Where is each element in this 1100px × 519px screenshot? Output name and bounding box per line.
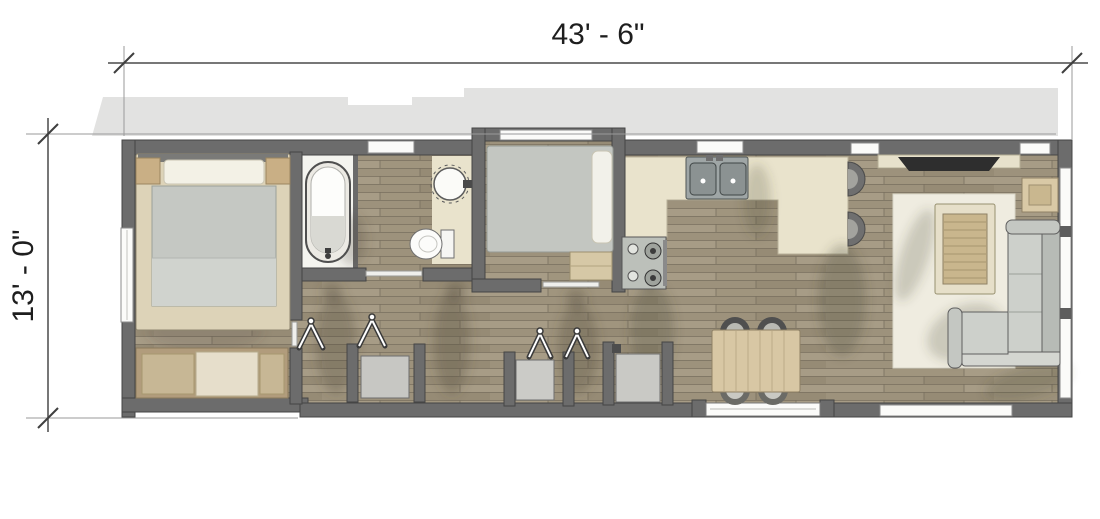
- window-kitchen: [697, 141, 743, 153]
- coffee-table-top: [943, 214, 987, 284]
- window-bathroom: [368, 141, 414, 153]
- burner-small: [628, 271, 638, 281]
- wall-closet-a-right: [414, 344, 425, 402]
- range-controls: [663, 240, 667, 286]
- pocket-door-bath: [366, 271, 422, 276]
- bunk-pillow: [592, 151, 612, 243]
- sofa-chaise-seat: [962, 312, 1008, 354]
- wall-bunkroom-left: [472, 128, 485, 292]
- sink-drain: [701, 179, 706, 184]
- window-right-wall: [1060, 168, 1071, 398]
- burner-cap: [650, 275, 656, 281]
- dresser-section: [196, 352, 258, 396]
- tub-faucet: [325, 248, 331, 253]
- sink-faucet: [716, 155, 723, 161]
- window-living-2: [1020, 143, 1050, 154]
- width-dimension-label: 43' - 6": [551, 18, 644, 51]
- shadow: [446, 280, 466, 300]
- washer: [616, 354, 660, 402]
- window-slideout: [500, 130, 592, 140]
- shadow: [566, 288, 586, 308]
- wall-bottom-bedroom: [122, 398, 308, 412]
- dresser-section: [260, 354, 284, 394]
- bathtub-water: [311, 216, 345, 253]
- height-dimension-label: 13' - 0": [7, 229, 40, 322]
- floor-plan-page: 43' - 6" 13' - 0": [0, 0, 1100, 519]
- shadow: [818, 244, 866, 356]
- wall-closet-b-left: [504, 352, 515, 406]
- dining-table: [712, 330, 800, 392]
- wall-bath-bottom-right: [423, 268, 472, 281]
- dining-area: [712, 317, 800, 405]
- shadow: [434, 290, 470, 394]
- window-bottom: [880, 405, 1012, 416]
- toilet-tank: [441, 230, 454, 258]
- pillows: [164, 160, 264, 184]
- wall-bedroom-upper: [290, 152, 302, 320]
- washer-hinge: [612, 344, 621, 353]
- master-bedroom: [136, 154, 290, 398]
- end-table-inset: [1029, 185, 1051, 205]
- entry-door-jamb-left: [692, 400, 706, 417]
- sink-faucet: [463, 180, 472, 188]
- pocket-door-bunkroom: [543, 282, 599, 287]
- tv: [898, 157, 1000, 171]
- wall-closet-c-right: [662, 342, 673, 405]
- window-living-1: [851, 143, 879, 154]
- window-mullion: [1060, 226, 1071, 237]
- sofa-back: [1042, 224, 1060, 352]
- closet-cabinet: [516, 360, 554, 400]
- sofa-arm-left: [948, 308, 962, 368]
- vanity-sink: [434, 168, 466, 200]
- floor-plan-drawing: 43' - 6" 13' - 0": [0, 0, 1100, 519]
- closet-cabinet: [361, 356, 409, 398]
- sofa-arm-top: [1006, 220, 1060, 234]
- wall-bath-bottom-left: [302, 268, 366, 281]
- wall-closet-a-left: [347, 344, 358, 402]
- shadow: [322, 282, 342, 302]
- burner-small: [628, 244, 638, 254]
- pocket-door-bedroom: [292, 322, 297, 346]
- wall-closet-b-right: [563, 352, 574, 406]
- dresser-section: [142, 354, 194, 394]
- sofa-seat: [1008, 232, 1042, 352]
- sink-faucet: [706, 155, 713, 161]
- wall-top-right: [625, 140, 1072, 155]
- burner-cap: [650, 248, 656, 254]
- sink-drain: [731, 179, 736, 184]
- nightstand-right: [266, 158, 290, 184]
- tub-drain: [325, 253, 331, 259]
- entry-door-jamb-right: [820, 400, 834, 417]
- window-mullion: [1060, 308, 1071, 319]
- bed-sheet: [152, 258, 276, 306]
- wall-bunkroom-bottom: [472, 279, 541, 292]
- wall-bedroom-lower: [290, 348, 302, 404]
- nightstand-left: [136, 158, 160, 184]
